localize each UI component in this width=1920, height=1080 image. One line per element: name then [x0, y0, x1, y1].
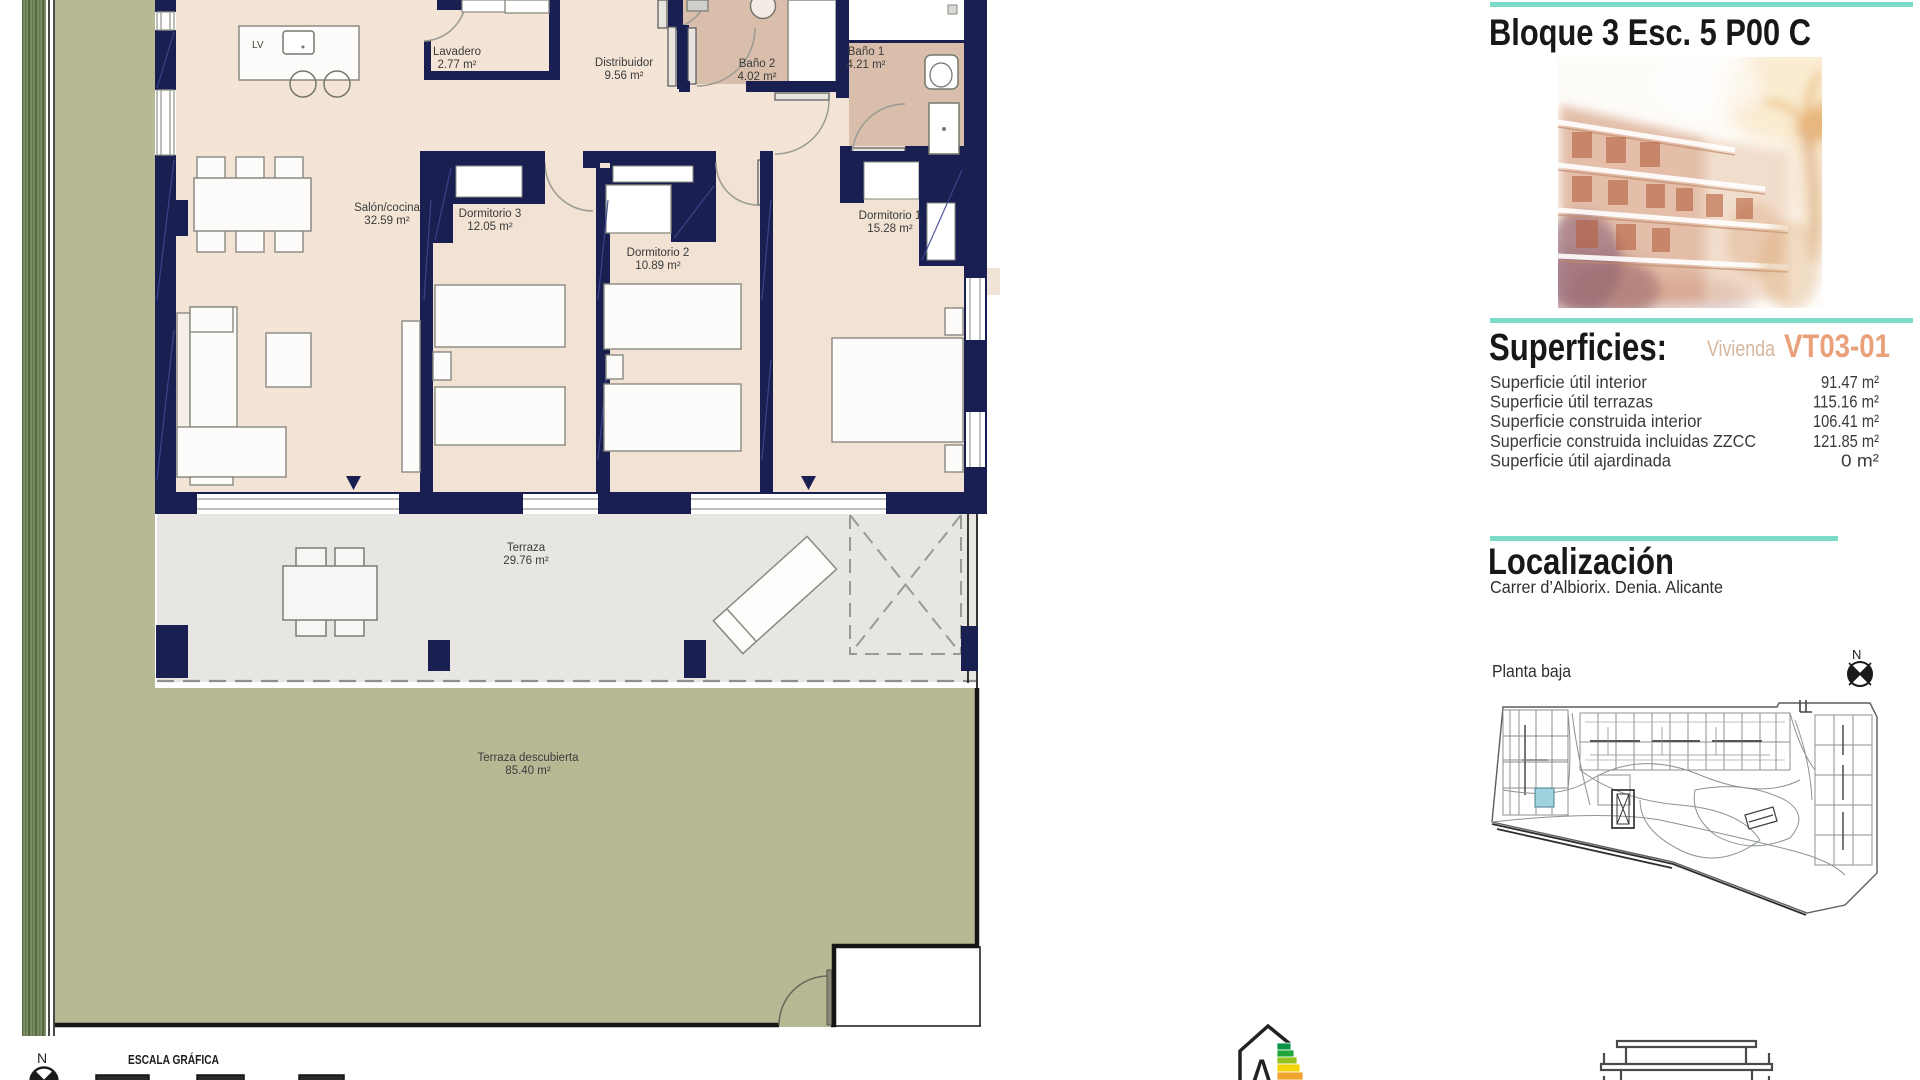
svg-text:Dormitorio 2: Dormitorio 2 [627, 247, 690, 259]
svg-text:Superficie construida interior: Superficie construida interior [1490, 411, 1702, 431]
svg-text:121.85 m²: 121.85 m² [1813, 431, 1879, 451]
svg-text:4.02 m²: 4.02 m² [738, 71, 777, 83]
svg-text:85.40 m²: 85.40 m² [505, 765, 551, 777]
svg-text:Dormitorio 1: Dormitorio 1 [859, 210, 922, 222]
svg-text:115.16 m²: 115.16 m² [1813, 392, 1879, 412]
svg-text:VT03-01: VT03-01 [1784, 328, 1890, 364]
svg-text:9.56 m²: 9.56 m² [605, 70, 644, 82]
svg-text:LV: LV [252, 40, 264, 51]
svg-text:32.59 m²: 32.59 m² [364, 215, 410, 227]
svg-text:Salón/cocina: Salón/cocina [354, 202, 420, 214]
svg-text:Superficie útil terrazas: Superficie útil terrazas [1490, 392, 1653, 412]
svg-text:Localización: Localización [1488, 541, 1674, 582]
svg-text:A: A [1248, 1049, 1276, 1080]
svg-text:N: N [37, 1050, 47, 1066]
svg-text:91.47 m²: 91.47 m² [1821, 372, 1879, 392]
svg-text:Vivienda: Vivienda [1707, 336, 1776, 361]
svg-text:ESCALA GRÁFICA: ESCALA GRÁFICA [128, 1052, 219, 1067]
svg-text:Distribuidor: Distribuidor [595, 57, 653, 69]
svg-text:Bloque 3 Esc. 5 P00 C: Bloque 3 Esc. 5 P00 C [1489, 12, 1811, 53]
svg-text:Lavadero: Lavadero [433, 46, 481, 58]
svg-text:0 m²: 0 m² [1841, 451, 1879, 471]
svg-text:4.21 m²: 4.21 m² [847, 59, 886, 71]
svg-text:15.28 m²: 15.28 m² [867, 223, 913, 235]
svg-text:106.41 m²: 106.41 m² [1813, 411, 1879, 431]
svg-text:2.77 m²: 2.77 m² [438, 59, 477, 71]
svg-text:Baño 1: Baño 1 [848, 46, 884, 58]
svg-text:Dormitorio 3: Dormitorio 3 [459, 208, 522, 220]
svg-text:Superficies:: Superficies: [1489, 327, 1667, 369]
svg-text:29.76 m²: 29.76 m² [503, 555, 549, 567]
svg-text:Superficie construida incluida: Superficie construida incluidas ZZCC [1490, 431, 1756, 451]
svg-text:N: N [1852, 647, 1861, 662]
svg-text:10.89 m²: 10.89 m² [635, 260, 681, 272]
svg-text:Superficie útil ajardinada: Superficie útil ajardinada [1490, 451, 1671, 471]
svg-text:Terraza descubierta: Terraza descubierta [478, 752, 580, 764]
svg-text:Terraza: Terraza [507, 542, 546, 554]
svg-text:Planta baja: Planta baja [1492, 661, 1571, 681]
svg-text:Baño 2: Baño 2 [739, 58, 775, 70]
svg-text:Superficie útil interior: Superficie útil interior [1490, 372, 1647, 392]
svg-text:12.05 m²: 12.05 m² [467, 221, 513, 233]
svg-text:Carrer d’Albiorix. Denia. Alic: Carrer d’Albiorix. Denia. Alicante [1490, 577, 1723, 597]
